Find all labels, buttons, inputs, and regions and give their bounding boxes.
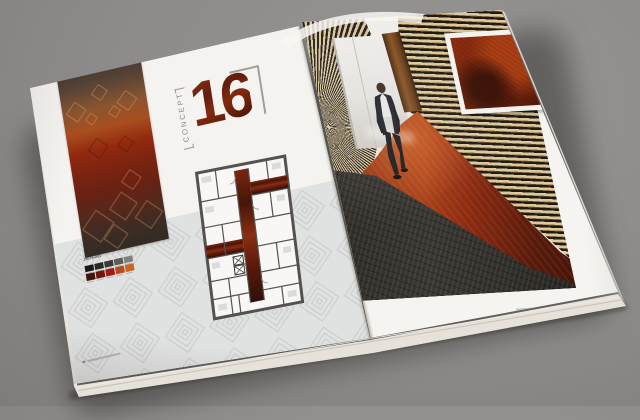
spine-overlay: [0, 0, 640, 406]
spine-gutter: [300, 27, 371, 339]
photo-scene: CONCEPT 16: [0, 0, 640, 406]
